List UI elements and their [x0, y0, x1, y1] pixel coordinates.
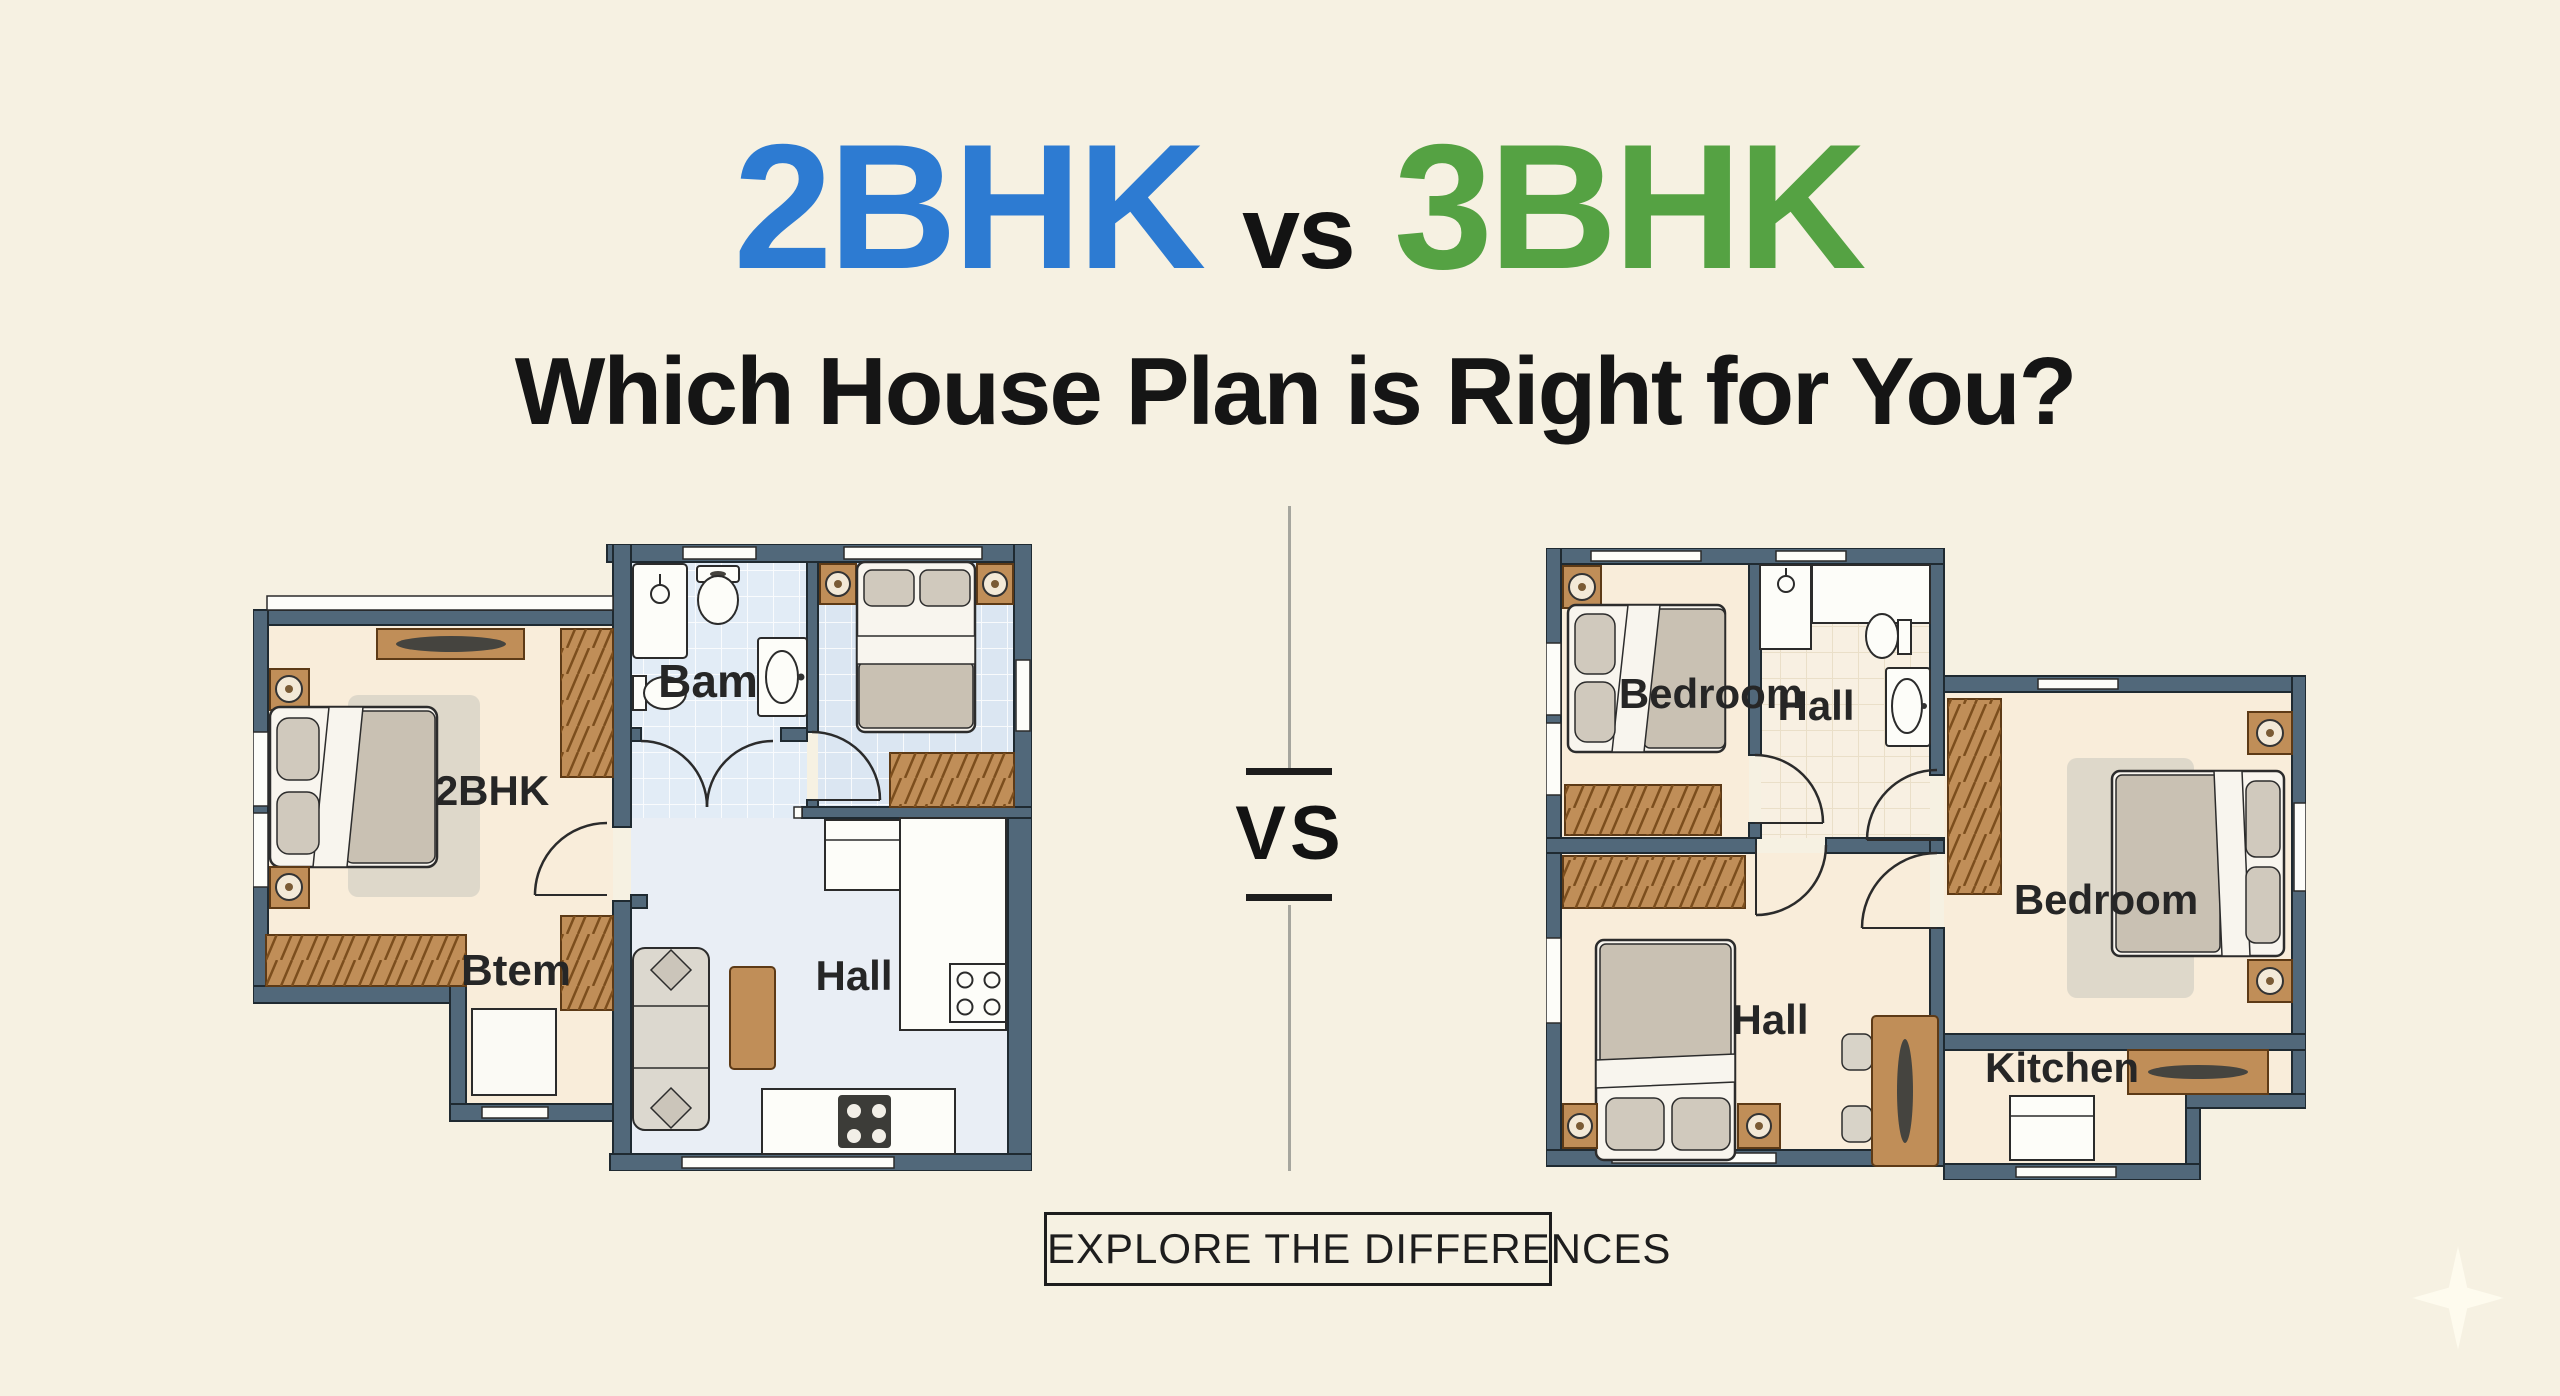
infographic-canvas: 2BHKvs3BHK Which House Plan is Right for… [0, 0, 2560, 1396]
page-title: 2BHKvs3BHK [18, 118, 2560, 296]
sink-icon [758, 638, 807, 716]
nightstand-icon [2248, 712, 2292, 754]
title-3bhk: 3BHK [1394, 107, 1863, 306]
room-label-bedroom2: Btem [461, 949, 571, 993]
nightstand-icon [270, 669, 309, 710]
divider-bar-top [1246, 768, 1332, 775]
sink-icon [1886, 668, 1930, 746]
coffee-table-icon [730, 967, 775, 1069]
bath-counter-icon [1812, 565, 1930, 623]
stove-icon [950, 964, 1006, 1022]
wardrobe-icon [1948, 699, 2001, 894]
room-label-bath: Bam [658, 658, 758, 704]
sofa-icon [633, 948, 709, 1130]
floor-plan-3bhk: Bedroom Hall Bedroom Hall Kitchen [1546, 548, 2306, 1180]
room-label-kitchen: Kitchen [1985, 1047, 2139, 1089]
page-subtitle: Which House Plan is Right for You? [15, 344, 2560, 440]
room-label-bedroom: 2BHK [435, 770, 549, 812]
kitchen-counter-icon [2128, 1050, 2268, 1094]
divider-line-top [1288, 506, 1291, 768]
shower-icon [633, 564, 687, 658]
fridge-icon [825, 820, 900, 890]
bed-icon [270, 707, 437, 867]
title-vs: vs [1242, 175, 1354, 291]
title-2bhk: 2BHK [734, 107, 1203, 306]
appliance-icon [2010, 1096, 2094, 1160]
room-label-bedroom2: Bedroom [2014, 879, 2198, 921]
floor-plan-2bhk-drawing [253, 544, 1032, 1171]
nightstand-icon [1563, 566, 1601, 608]
bed-icon [857, 562, 975, 732]
vs-label: VS [1235, 796, 1344, 872]
bed-icon [2112, 771, 2284, 956]
dining-table-icon [1872, 1016, 1938, 1166]
nightstand-icon [1563, 1104, 1597, 1148]
nightstand-icon [1738, 1104, 1780, 1148]
toilet-icon [697, 566, 739, 624]
divider-line-bottom [1288, 905, 1291, 1171]
nightstand-icon [820, 564, 856, 604]
explore-differences-button[interactable]: EXPLORE THE DIFFERENCES [1044, 1212, 1552, 1286]
cooktop-icon [762, 1089, 955, 1154]
shower-icon [1760, 565, 1811, 649]
chair-icon [1842, 1106, 1872, 1142]
floor-plan-2bhk: Bam 2BHK Btem Hall [253, 544, 1032, 1171]
dresser-handle-icon [396, 636, 506, 652]
toilet-icon [1866, 614, 1911, 658]
bed-icon [1596, 940, 1735, 1160]
sparkle-icon [2412, 1246, 2504, 1350]
room-label-bedroom1: Bedroom [1619, 673, 1803, 715]
chair-icon [1842, 1034, 1872, 1070]
wardrobe-icon [1565, 785, 1721, 835]
room-label-hall: Hall [1731, 999, 1808, 1041]
room-label-hall: Hall [815, 955, 892, 997]
wardrobe-icon [1563, 856, 1745, 908]
nightstand-icon [270, 867, 309, 908]
nightstand-icon [977, 564, 1013, 604]
door-panel-icon [472, 1009, 556, 1095]
room-label-bath: Hall [1777, 685, 1854, 727]
divider-bar-bottom [1246, 894, 1332, 901]
nightstand-icon [2248, 960, 2292, 1002]
wardrobe-icon [890, 753, 1014, 807]
floor-plan-3bhk-drawing [1546, 548, 2306, 1180]
